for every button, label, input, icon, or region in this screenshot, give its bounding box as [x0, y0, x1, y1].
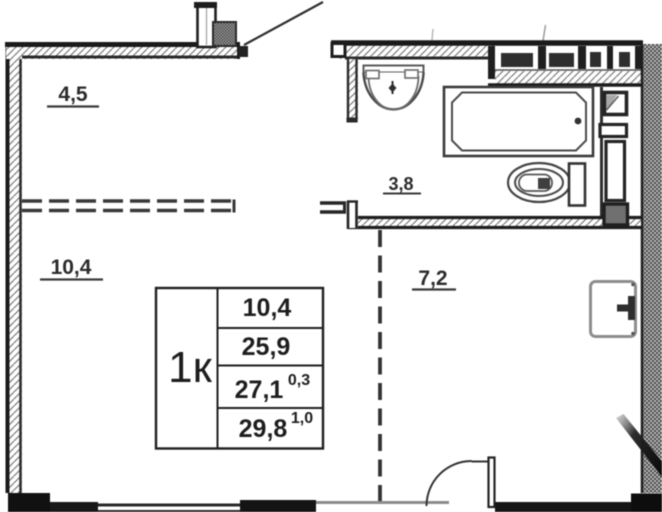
svg-text:27,1: 27,1: [235, 376, 284, 404]
svg-text:25,9: 25,9: [242, 333, 291, 361]
svg-text:1к: 1к: [168, 343, 212, 392]
svg-text:29,8: 29,8: [239, 415, 288, 443]
svg-text:7,2: 7,2: [418, 267, 447, 290]
svg-text:10,4: 10,4: [243, 294, 292, 322]
svg-text:10,4: 10,4: [51, 256, 92, 279]
svg-text:1,0: 1,0: [291, 410, 313, 427]
svg-text:3,8: 3,8: [388, 174, 413, 194]
svg-text:4,5: 4,5: [58, 83, 88, 106]
svg-text:0,3: 0,3: [288, 372, 310, 389]
